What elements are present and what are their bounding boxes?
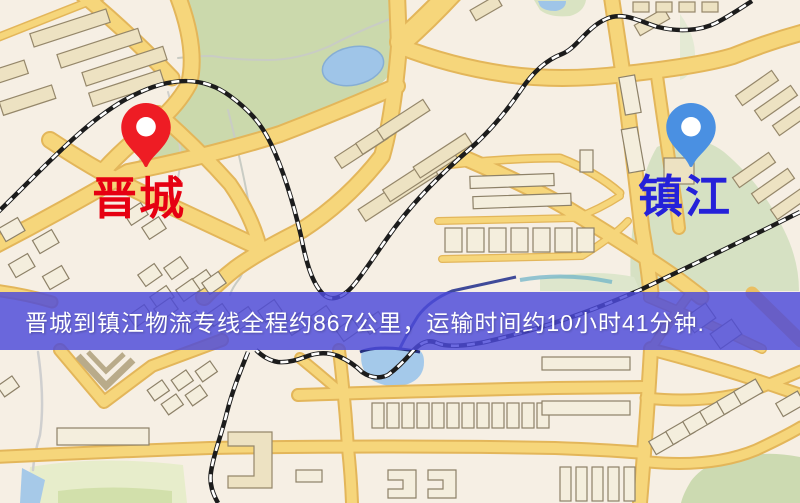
destination-pin-icon	[665, 102, 717, 168]
origin-city-label: 晋城	[92, 176, 186, 221]
map-graphic	[0, 0, 800, 503]
origin-pin-icon	[120, 102, 172, 168]
route-info-text: 晋城到镇江物流专线全程约867公里，运输时间约10小时41分钟.	[0, 304, 705, 338]
pond-bottom	[361, 350, 424, 386]
route-info-banner: 晋城到镇江物流专线全程约867公里，运输时间约10小时41分钟.	[0, 292, 800, 350]
destination-city-label: 镇江	[638, 174, 732, 219]
pin-hole	[136, 117, 156, 137]
pin-hole	[681, 117, 701, 137]
route-map-image: 晋城到镇江物流专线全程约867公里，运输时间约10小时41分钟. 晋城 镇江	[0, 0, 800, 503]
